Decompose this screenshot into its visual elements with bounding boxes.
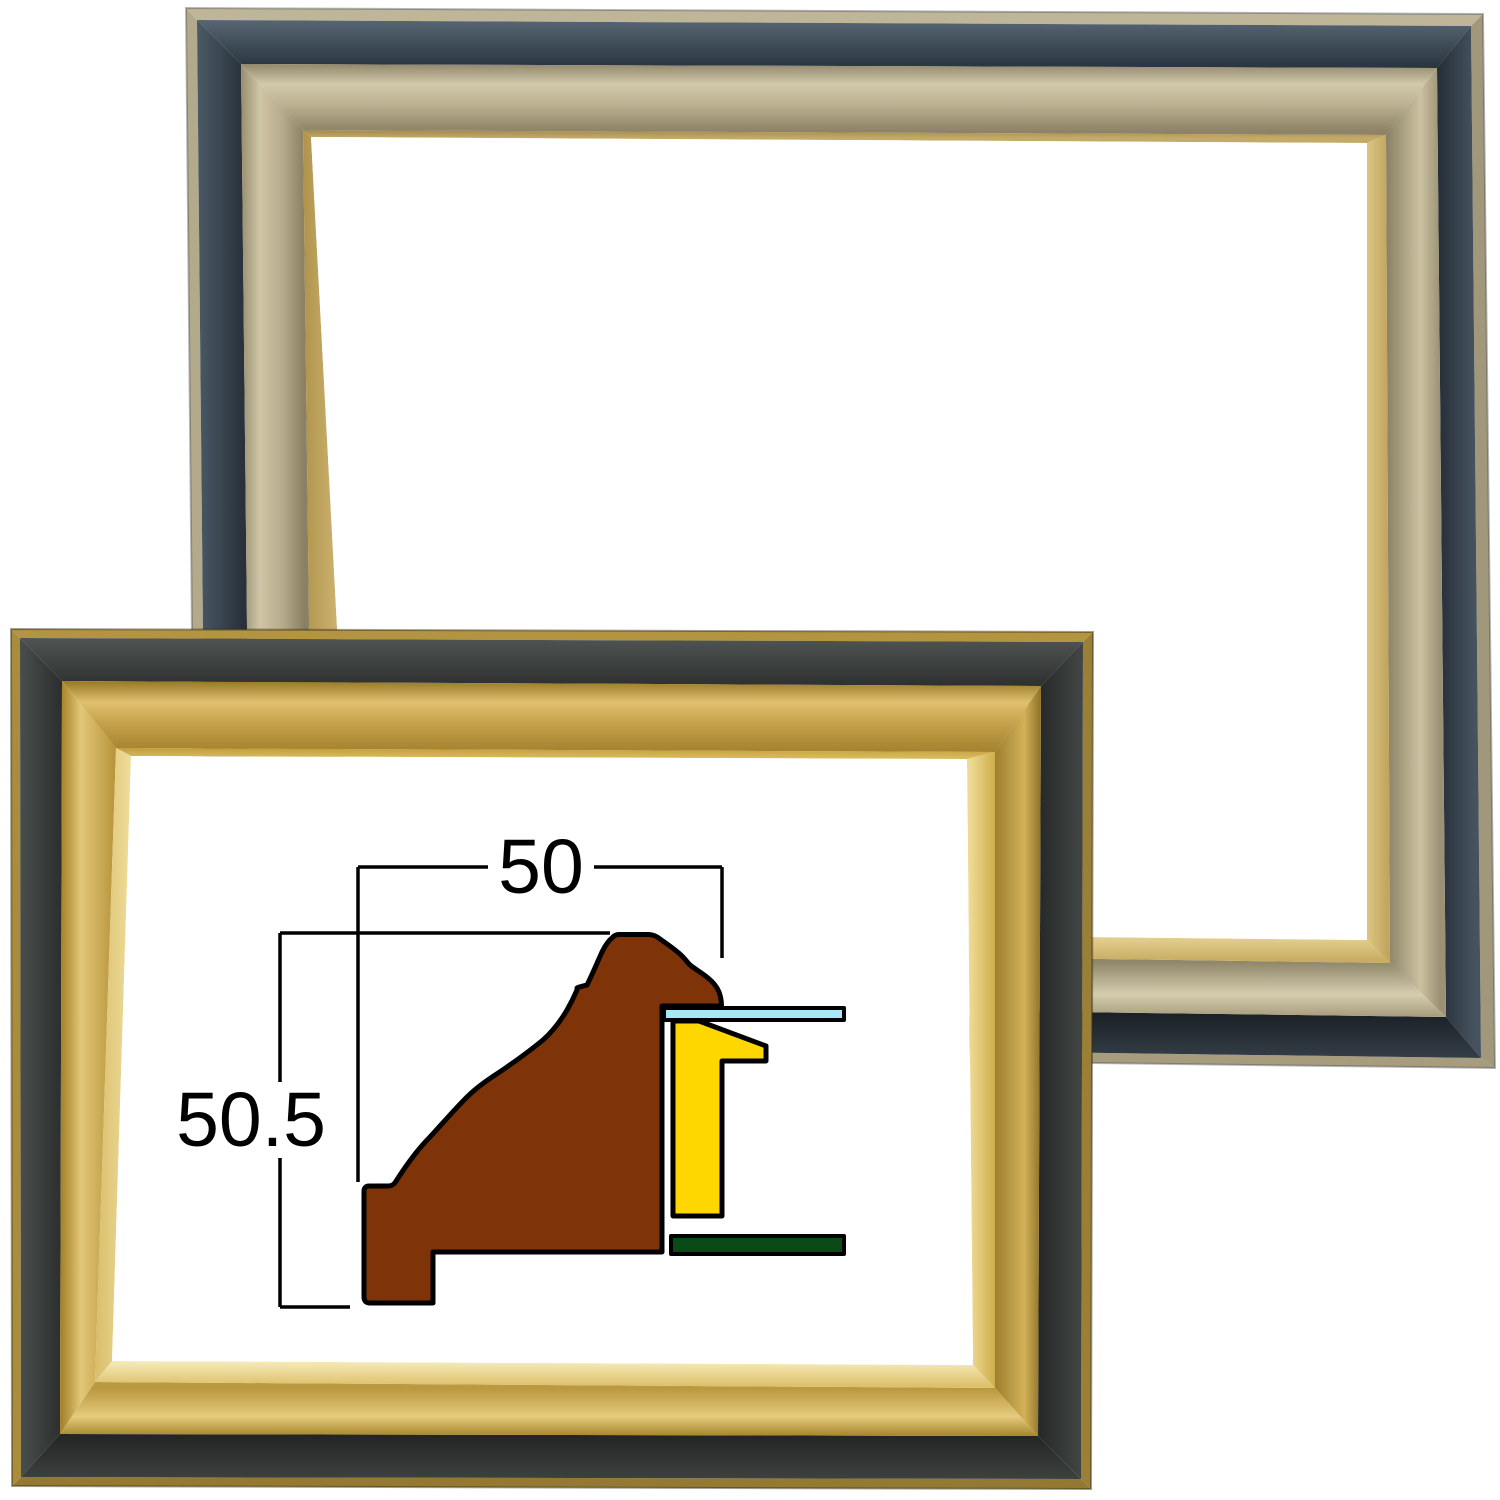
height-label: 50.5 bbox=[176, 1077, 326, 1163]
front-frame-dark-band-top bbox=[20, 638, 1083, 686]
product-image: 50 50.5 bbox=[0, 0, 1500, 1500]
front-frame-slope-bottom bbox=[60, 1382, 1038, 1436]
back-frame-slope-top bbox=[241, 64, 1437, 135]
front-frame-slope-right bbox=[995, 686, 1041, 1436]
backboard-strip bbox=[671, 1236, 844, 1254]
back-frame-slope-right bbox=[1386, 68, 1446, 1017]
front-frame-dark-band-left bbox=[20, 638, 62, 1477]
front-frame-dark-band-bottom bbox=[21, 1434, 1081, 1479]
back-frame-lip-right bbox=[1367, 135, 1390, 963]
back-frame-dark-band-top bbox=[197, 20, 1471, 68]
glass-strip bbox=[664, 1008, 844, 1020]
front-frame-slope-top bbox=[62, 681, 1041, 752]
front-frame-dark-band-right bbox=[1038, 642, 1083, 1479]
width-label: 50 bbox=[498, 824, 584, 910]
